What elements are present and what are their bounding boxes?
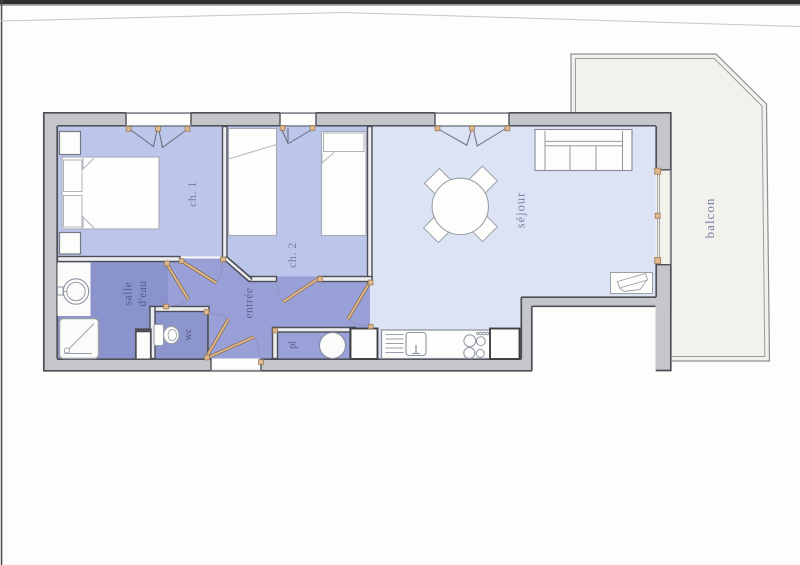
svg-text:séjour: séjour — [514, 192, 528, 229]
svg-text:wc: wc — [183, 328, 194, 340]
svg-text:ch. 2: ch. 2 — [285, 242, 299, 268]
svg-text:entrée: entrée — [244, 287, 256, 318]
svg-text:balcon: balcon — [702, 198, 717, 239]
svg-text:ch. 1: ch. 1 — [185, 181, 199, 207]
svg-text:pl: pl — [288, 341, 299, 349]
svg-text:salle: salle — [123, 282, 135, 306]
svg-text:d'eau: d'eau — [137, 280, 149, 306]
